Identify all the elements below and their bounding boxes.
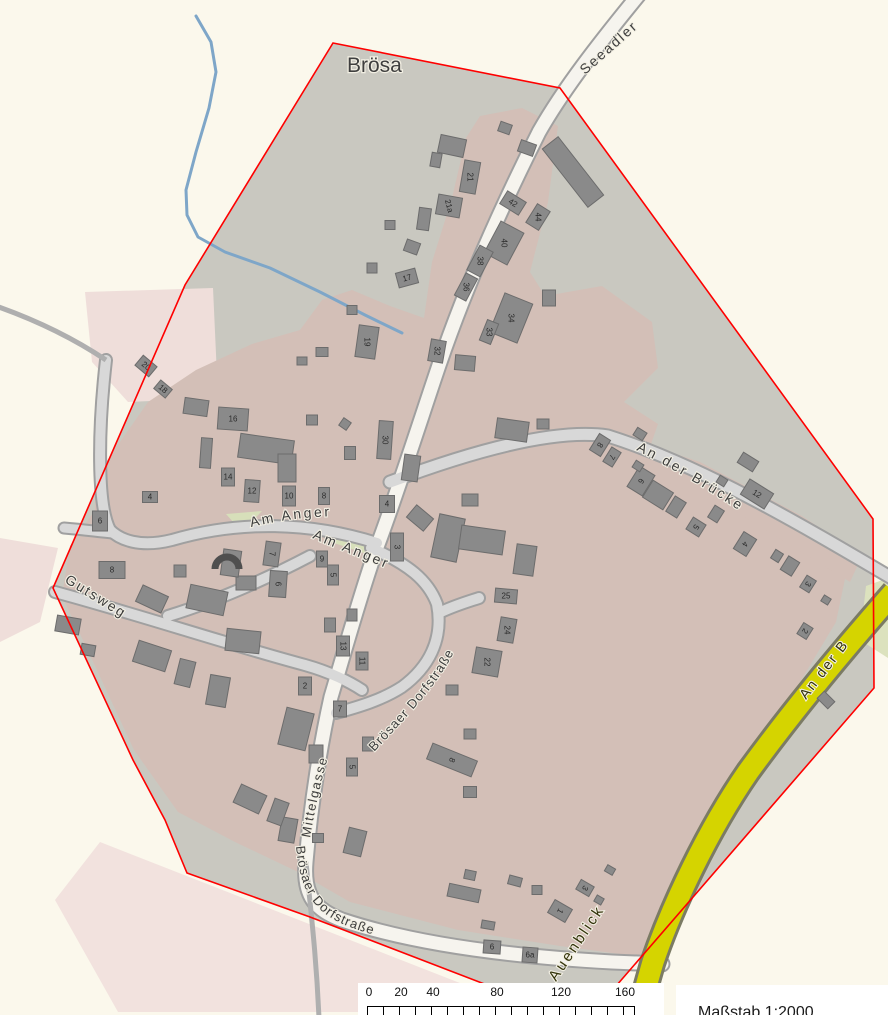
- building: [325, 618, 336, 632]
- house-number: 44: [534, 213, 543, 222]
- building: [225, 628, 261, 653]
- building: [430, 152, 442, 168]
- house-number: 7: [338, 705, 343, 714]
- house-number: 14: [224, 473, 233, 482]
- house-number: 24: [503, 626, 512, 635]
- building: [345, 447, 356, 460]
- scale-ratio-text: Maßstab 1:2000: [698, 1004, 814, 1015]
- building: 11: [356, 652, 368, 670]
- building: 14: [222, 468, 235, 486]
- map-canvas[interactable]: 2121a17194244403836343332201816141210843…: [0, 0, 888, 1015]
- house-number: 38: [476, 257, 485, 266]
- house-number: 3: [393, 545, 402, 550]
- building: [532, 886, 542, 895]
- building: [464, 869, 477, 880]
- building: 6: [93, 511, 108, 531]
- building: [278, 454, 296, 482]
- building: 8: [319, 488, 330, 505]
- scalebar-tick: 160: [615, 985, 635, 999]
- scalebar-tick: 40: [426, 985, 439, 999]
- building: 13: [337, 636, 350, 656]
- building: [464, 729, 476, 739]
- house-number: 32: [433, 347, 442, 356]
- building: 2: [299, 677, 312, 695]
- scalebar-tick: 0: [366, 985, 373, 999]
- building: 7: [334, 701, 347, 717]
- map-viewport[interactable]: 2121a17194244403836343332201816141210843…: [0, 0, 888, 1015]
- house-number: 5: [329, 573, 338, 578]
- house-number: 33: [485, 328, 494, 337]
- building: [454, 355, 475, 372]
- building: 4: [380, 496, 395, 513]
- building: [347, 306, 357, 315]
- building: 16: [217, 407, 248, 431]
- house-number: 12: [248, 487, 257, 496]
- building: 8: [99, 562, 125, 579]
- house-number: 8: [110, 566, 115, 575]
- house-number: 6a: [526, 951, 535, 960]
- building: [481, 920, 495, 930]
- scale-ratio-box: Maßstab 1:2000: [676, 985, 888, 1015]
- building: [417, 207, 432, 230]
- building: [236, 576, 256, 590]
- house-number: 11: [358, 657, 367, 666]
- house-number: 34: [507, 314, 516, 323]
- scalebar-tick: 80: [490, 985, 503, 999]
- building: [183, 397, 209, 416]
- house-number: 30: [381, 436, 390, 445]
- house-number: 7: [268, 552, 277, 557]
- house-number: 36: [462, 283, 471, 292]
- building: [446, 685, 458, 695]
- house-number: 40: [500, 239, 509, 248]
- building: [543, 290, 556, 306]
- building: 24: [497, 617, 517, 643]
- building: [462, 494, 478, 506]
- scalebar-tick: 120: [551, 985, 571, 999]
- building: [174, 565, 186, 577]
- building: [401, 454, 420, 482]
- building: 19: [355, 325, 379, 359]
- building: 22: [472, 647, 502, 677]
- building: 5: [328, 565, 339, 585]
- building: 10: [283, 486, 296, 506]
- scalebar: 0 20 40 80 120 160: [358, 983, 664, 1015]
- building: [385, 221, 395, 230]
- scalebar-tick: 20: [394, 985, 407, 999]
- house-number: 19: [363, 338, 372, 347]
- building: 9: [317, 551, 328, 567]
- house-number: 25: [502, 592, 511, 601]
- house-number: 21: [466, 173, 475, 182]
- house-number: 4: [148, 493, 153, 502]
- building: [313, 834, 324, 843]
- building: [307, 415, 318, 425]
- place-label-broesa: Brösa: [347, 54, 402, 77]
- building: [464, 787, 477, 798]
- building: 12: [244, 480, 260, 503]
- building: 25: [494, 588, 517, 604]
- building: 30: [377, 421, 394, 460]
- house-number: 6: [274, 582, 283, 587]
- house-number: 13: [339, 642, 348, 651]
- house-number: 10: [285, 492, 294, 501]
- building: 5: [347, 758, 358, 776]
- building: [297, 357, 307, 365]
- house-number: 8: [322, 492, 327, 501]
- scalebar-bar: [367, 1006, 635, 1015]
- house-number: 6: [490, 943, 495, 952]
- building: 6a: [522, 947, 538, 963]
- house-number: 22: [483, 658, 492, 667]
- building: 6: [483, 940, 501, 954]
- building: 32: [428, 339, 447, 363]
- house-number: 9: [320, 555, 325, 564]
- building: 7: [263, 541, 281, 567]
- building: 21a: [435, 194, 462, 218]
- house-number: 6: [98, 517, 103, 526]
- house-number: 16: [229, 415, 238, 424]
- building: [199, 438, 212, 469]
- building: [537, 419, 549, 429]
- building: [367, 263, 377, 273]
- building: 4: [143, 492, 158, 503]
- building: [513, 544, 537, 576]
- building: [55, 615, 81, 635]
- house-number: 5: [348, 765, 357, 770]
- house-number: 4: [385, 500, 390, 509]
- house-number: 2: [303, 682, 308, 691]
- building: [347, 609, 357, 621]
- building: 6: [269, 570, 288, 597]
- building: [316, 348, 328, 357]
- building: [495, 418, 529, 442]
